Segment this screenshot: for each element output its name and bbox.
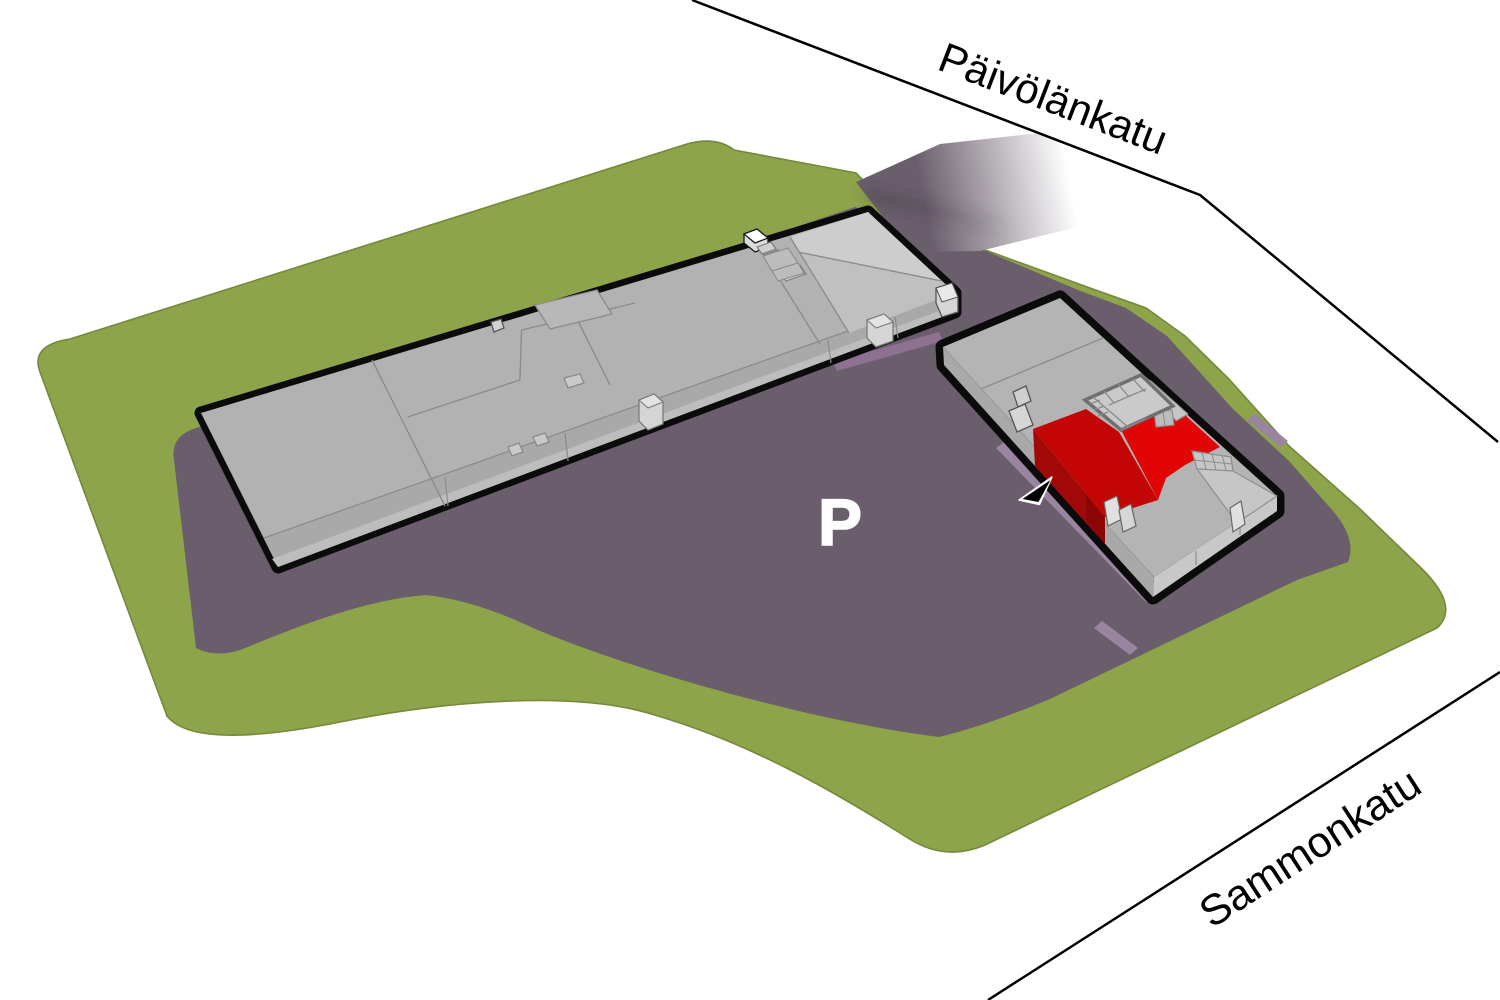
- svg-text:P: P: [818, 485, 862, 559]
